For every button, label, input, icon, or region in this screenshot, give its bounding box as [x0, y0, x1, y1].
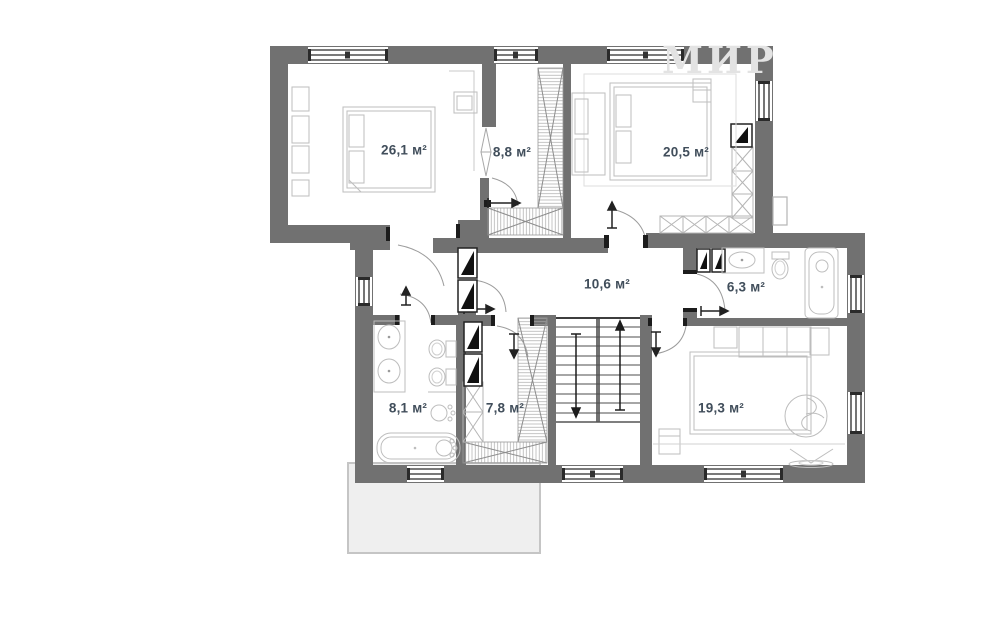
room-area-label-bedroom-right: 20,5 м²: [663, 145, 709, 160]
window: [494, 47, 538, 63]
pillow: [616, 95, 631, 127]
room-area-label-wardrobe-top: 8,8 м²: [493, 145, 531, 160]
chair: [457, 96, 472, 110]
window: [607, 47, 684, 63]
room-area-label-wardrobe-bottom: 7,8 м²: [486, 401, 524, 416]
window: [704, 466, 783, 482]
door-leaf: [481, 128, 491, 176]
floor-plan-drawing: [0, 0, 1000, 630]
room-area-label-hallway: 10,6 м²: [584, 277, 630, 292]
window: [407, 466, 444, 482]
double-bed: [690, 352, 811, 434]
toilet-tank: [446, 341, 456, 357]
nightstand: [714, 327, 737, 348]
floor-plan-canvas: 26,1 м² 8,8 м² 20,5 м² 10,6 м² 6,3 м² 8,…: [0, 0, 1000, 630]
window: [848, 392, 864, 434]
furniture-bedroom-right: [572, 74, 736, 186]
tub-faucet: [436, 440, 452, 456]
dresser: [659, 429, 680, 454]
room-area-label-bedroom-bottom: 19,3 м²: [698, 401, 744, 416]
window: [308, 47, 388, 63]
window: [756, 81, 772, 121]
furniture-bathroom-left: [374, 321, 460, 463]
pillow: [349, 151, 364, 183]
room-area-label-bedroom-large: 26,1 м²: [381, 143, 427, 158]
nightstand: [810, 328, 829, 355]
furniture-bedroom-bottom: [653, 327, 845, 468]
pillow: [349, 115, 364, 147]
window: [356, 277, 372, 306]
room-area-label-bathroom-right: 6,3 м²: [727, 280, 765, 295]
window: [562, 466, 623, 482]
furniture-bedroom-large: [292, 71, 477, 196]
drain: [816, 260, 828, 272]
pillow: [616, 131, 631, 163]
bidet-tank: [446, 369, 456, 385]
toilet: [772, 259, 788, 279]
vent-box: [773, 197, 787, 225]
toilet-tank: [772, 252, 789, 259]
room-area-label-bathroom-left: 8,1 м²: [389, 401, 427, 416]
window: [848, 275, 864, 313]
rug: [584, 74, 736, 186]
shower-faucet: [431, 405, 447, 421]
windows: [308, 47, 864, 482]
